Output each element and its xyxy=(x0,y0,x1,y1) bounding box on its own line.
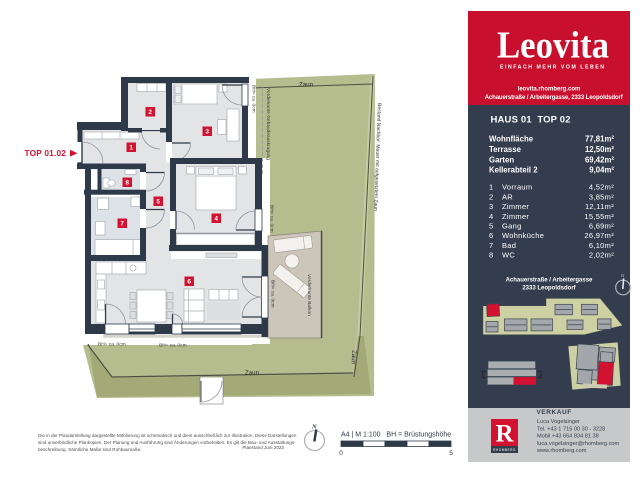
svg-text:5: 5 xyxy=(489,222,493,231)
svg-text:BH= ca. 0cm: BH= ca. 0cm xyxy=(98,342,126,348)
svg-text:luca.vogelsinger@rhomberg.com: luca.vogelsinger@rhomberg.com xyxy=(537,441,620,447)
svg-text:BH= ca. 0cm: BH= ca. 0cm xyxy=(251,85,257,113)
svg-text:4: 4 xyxy=(489,212,493,221)
svg-text:Zimmer: Zimmer xyxy=(502,212,529,221)
svg-text:Achauerstraße / Arbeitergasse: Achauerstraße / Arbeitergasse xyxy=(506,278,593,284)
svg-text:2333 Leopoldsdorf: 2333 Leopoldsdorf xyxy=(522,286,576,292)
svg-text:26,97m²: 26,97m² xyxy=(584,231,614,240)
svg-text:2: 2 xyxy=(489,192,493,201)
svg-text:Wohnfläche: Wohnfläche xyxy=(489,135,534,144)
svg-text:3,85m²: 3,85m² xyxy=(589,192,614,201)
svg-text:RHOMBERG: RHOMBERG xyxy=(493,448,516,452)
svg-text:5: 5 xyxy=(156,199,160,206)
svg-text:7: 7 xyxy=(489,241,493,250)
svg-text:0: 0 xyxy=(339,450,343,457)
svg-text:A4 | M 1:100 BH = Brüstungsh: A4 | M 1:100 BH = Brüstungshöhe xyxy=(341,432,451,439)
svg-text:Wohnküche: Wohnküche xyxy=(502,231,544,240)
svg-text:Terrasse: Terrasse xyxy=(489,145,522,154)
svg-text:Vorraum: Vorraum xyxy=(502,183,532,192)
svg-text:N: N xyxy=(311,424,317,431)
svg-text:15,55m²: 15,55m² xyxy=(584,212,614,221)
svg-text:BH= ca. 0cm: BH= ca. 0cm xyxy=(159,343,187,349)
svg-text:2,02m²: 2,02m² xyxy=(589,251,614,260)
svg-text:Planstand Juni 2023: Planstand Juni 2023 xyxy=(242,445,284,450)
svg-text:6: 6 xyxy=(489,231,493,240)
svg-text:77,81m²: 77,81m² xyxy=(585,135,614,144)
svg-text:WC: WC xyxy=(502,251,515,260)
svg-text:6,10m²: 6,10m² xyxy=(589,241,614,250)
svg-text:69,42m²: 69,42m² xyxy=(585,155,614,164)
svg-text:Bad: Bad xyxy=(502,241,516,250)
svg-text:Zimmer: Zimmer xyxy=(502,202,529,211)
svg-text:1: 1 xyxy=(489,183,493,192)
svg-text:12,50m²: 12,50m² xyxy=(585,145,614,154)
svg-text:1: 1 xyxy=(129,145,133,152)
svg-text:HAUS 01 TOP 02: HAUS 01 TOP 02 xyxy=(491,115,571,126)
svg-text:Mobil +43 664 834 81 38: Mobil +43 664 834 81 38 xyxy=(537,434,599,440)
svg-text:Zaun: Zaun xyxy=(350,350,358,365)
svg-text:leovita.rhomberg.com: leovita.rhomberg.com xyxy=(518,87,581,93)
svg-text:Vorderkante Balkon: Vorderkante Balkon xyxy=(306,274,312,316)
svg-text:www.rhomberg.com: www.rhomberg.com xyxy=(536,448,587,454)
svg-text:7: 7 xyxy=(120,221,124,228)
svg-text:R: R xyxy=(495,421,514,448)
svg-text:6,69m²: 6,69m² xyxy=(589,222,614,231)
svg-text:Luca Vogelsinger: Luca Vogelsinger xyxy=(537,419,580,425)
svg-text:3: 3 xyxy=(205,129,209,136)
svg-text:AR: AR xyxy=(502,192,513,201)
svg-text:Gang: Gang xyxy=(502,222,522,231)
svg-text:Leovita: Leovita xyxy=(497,25,609,67)
svg-text:Achauerstraße / Arbeitergasse,: Achauerstraße / Arbeitergasse, 2333 Leop… xyxy=(485,95,624,101)
svg-text:6: 6 xyxy=(187,279,191,286)
svg-text:9,04m²: 9,04m² xyxy=(589,165,614,174)
svg-text:Tel. +43 1 715 00 30 - 3228: Tel. +43 1 715 00 30 - 3228 xyxy=(537,426,605,432)
svg-text:BH= ca. 0cm: BH= ca. 0cm xyxy=(270,280,276,308)
svg-text:Garten: Garten xyxy=(489,155,514,164)
svg-text:12,11m²: 12,11m² xyxy=(585,202,614,211)
svg-text:2: 2 xyxy=(148,109,152,116)
svg-text:BH= ca. 0cm: BH= ca. 0cm xyxy=(269,205,275,233)
svg-text:Kellerabteil 2: Kellerabteil 2 xyxy=(489,165,538,174)
svg-text:TOP 01.02: TOP 01.02 xyxy=(25,148,67,158)
svg-text:VERKAUF: VERKAUF xyxy=(537,409,572,416)
svg-text:8: 8 xyxy=(125,180,129,187)
svg-text:4,52m²: 4,52m² xyxy=(589,183,614,192)
svg-text:Vorderkante Gebäudeauskragung: Vorderkante Gebäudeauskragung xyxy=(265,88,271,160)
svg-text:Die in der Plandarstellung dar: Die in der Plandarstellung dargestellte … xyxy=(38,433,297,438)
svg-text:8: 8 xyxy=(489,251,493,260)
svg-text:Zaun: Zaun xyxy=(299,82,314,89)
svg-text:Zaun: Zaun xyxy=(245,369,260,376)
svg-text:3: 3 xyxy=(489,202,493,211)
svg-text:4: 4 xyxy=(214,216,218,223)
svg-text:beschreibung. Sämtliche Maße s: beschreibung. Sämtliche Maße sind Rohbau… xyxy=(38,447,141,452)
svg-text:5: 5 xyxy=(449,450,453,457)
